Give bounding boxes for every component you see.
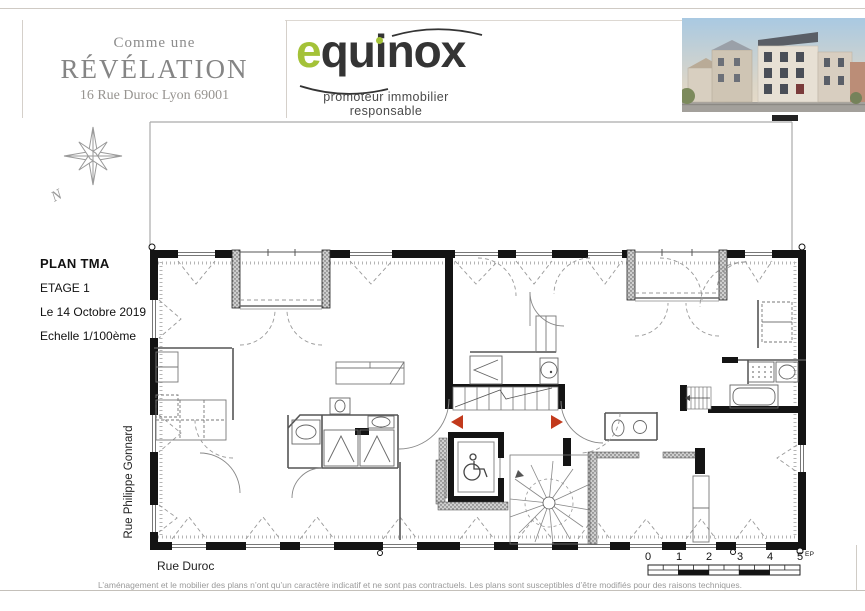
structural-walls <box>355 254 806 474</box>
spiral-stair <box>510 455 590 544</box>
entry-arrow-left-icon <box>451 415 463 429</box>
scale-bar-graphic <box>648 565 800 575</box>
scale-label-4: 4 <box>767 551 773 563</box>
property-boundary <box>150 122 792 250</box>
straight-stair <box>453 387 558 410</box>
elevator <box>439 432 504 502</box>
scale-label-2: 2 <box>706 551 712 563</box>
scale-label-5: 5 <box>797 551 803 563</box>
scale-bar-labels: 0 1 2 3 4 5 <box>642 551 814 563</box>
legal-disclaimer: L’aménagement et le mobilier des plans n… <box>60 580 780 590</box>
ep-marker-label: EP <box>805 551 814 558</box>
brochure-page: Comme une RÉVÉLATION 16 Rue Duroc Lyon 6… <box>0 0 865 611</box>
street-label-rue-philippe-gonnard: Rue Philippe Gonnard <box>123 417 135 547</box>
small-stair <box>685 387 711 409</box>
entry-arrow-right-icon <box>551 415 563 429</box>
scale-label-3: 3 <box>737 551 743 563</box>
scale-label-0: 0 <box>645 551 651 563</box>
scale-label-1: 1 <box>676 551 682 563</box>
wheelchair-icon <box>464 454 487 480</box>
street-label-rue-duroc: Rue Duroc <box>157 559 214 573</box>
neighbor-wall-mark <box>772 115 798 121</box>
